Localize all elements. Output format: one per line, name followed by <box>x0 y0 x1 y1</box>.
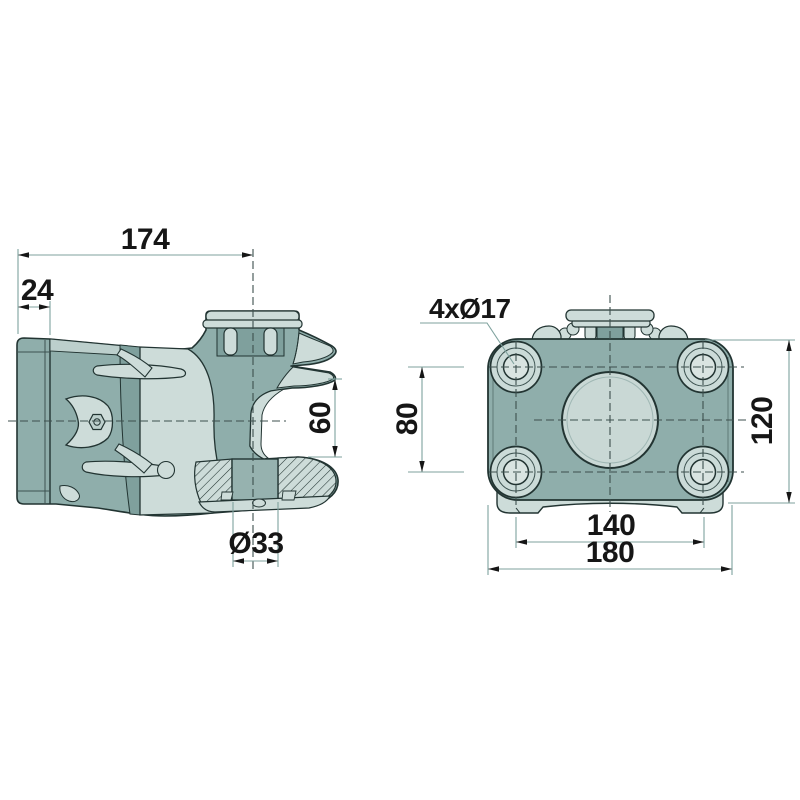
jaw-bore <box>232 459 278 500</box>
dimension-label-jaw-gap: 60 <box>304 402 337 434</box>
jaw-seat <box>282 491 296 500</box>
shoulder-wing <box>659 326 688 340</box>
shoulder-wing <box>532 326 561 340</box>
side-view: 174 24 60 Ø33 <box>8 223 342 569</box>
hex-bolt <box>89 415 105 430</box>
dimension-jaw-gap: 60 <box>304 379 342 457</box>
technical-drawing: 174 24 60 Ø33 <box>0 0 800 800</box>
jaw-roller <box>253 499 266 507</box>
dimension-label-flange-width: 180 <box>586 536 635 569</box>
jaw-seat <box>221 492 233 500</box>
drawing-canvas: 174 24 60 Ø33 <box>0 0 800 800</box>
dimension-label-end-cap-depth: 24 <box>21 274 54 307</box>
dimension-label-flange-height: 120 <box>746 397 779 446</box>
flange-post <box>264 328 277 355</box>
rib-bulb <box>158 462 175 479</box>
dimension-label-bore: Ø33 <box>228 527 283 560</box>
dimension-end-cap-depth: 24 <box>18 274 54 335</box>
dimension-label-hole-spacing-vertical: 80 <box>391 403 424 435</box>
flange-post <box>224 328 237 355</box>
dimension-label-bolt-holes: 4xØ17 <box>429 293 511 324</box>
front-view: 4xØ17 80 120 140 <box>391 293 795 575</box>
dimension-label-overall-length: 174 <box>121 223 170 256</box>
dimension-hole-spacing-vertical: 80 <box>391 367 464 472</box>
